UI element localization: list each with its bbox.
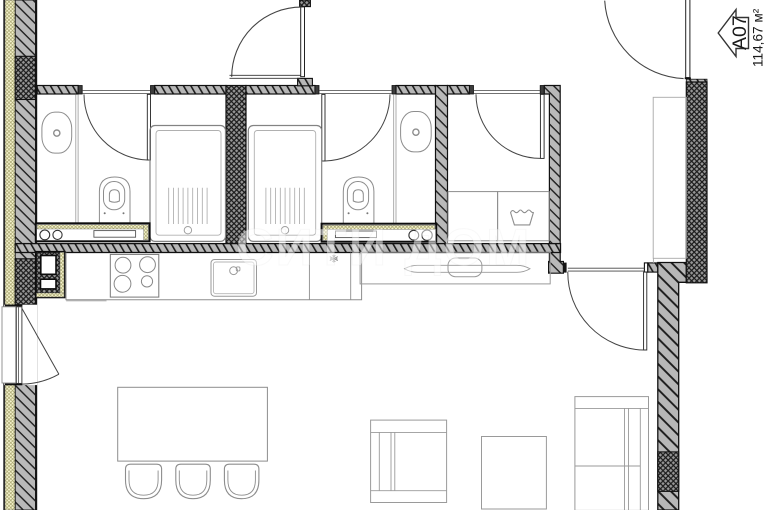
svg-text:СИТИ ДОМ: СИТИ ДОМ (236, 219, 531, 277)
svg-text:114,67 м²: 114,67 м² (751, 8, 764, 67)
svg-text:А07: А07 (729, 15, 751, 50)
